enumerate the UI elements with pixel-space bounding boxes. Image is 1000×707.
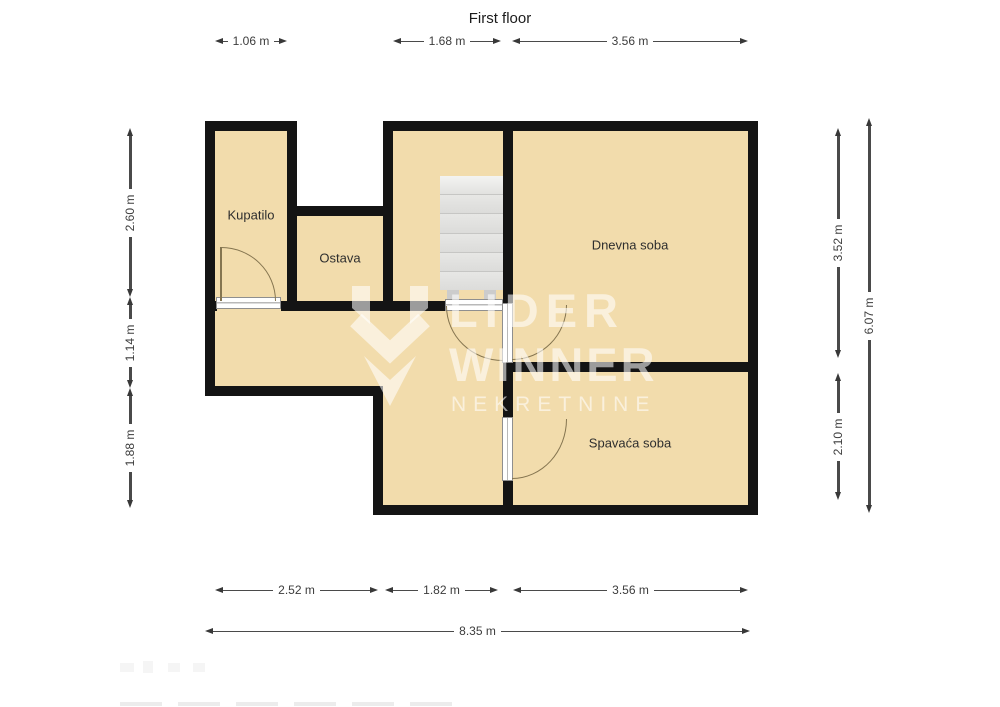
wall-mid-main [281, 301, 445, 311]
arrow-left-icon [512, 38, 520, 44]
arrow-left-icon [205, 628, 213, 634]
arrow-right-icon [740, 587, 748, 593]
arrow-up-icon [127, 297, 133, 305]
arrow-up-icon [127, 388, 133, 396]
stair-tread [440, 233, 503, 252]
stair-tread [440, 271, 503, 290]
dim-bottom-spavaca: 3.56 m [513, 583, 748, 597]
stair-tread [440, 194, 503, 213]
arrow-left-icon [215, 587, 223, 593]
floor-plan-page: First floor Kupatilo Ostava Dnevna soba … [0, 0, 1000, 707]
faint-artifact [120, 663, 134, 672]
faint-artifact [193, 663, 205, 672]
arrow-left-icon [385, 587, 393, 593]
dim-top-kupatilo: 1.06 m [215, 34, 287, 48]
wall-top-kupatilo [205, 121, 297, 131]
faint-artifact [143, 661, 153, 673]
dim-bottom-hall: 1.82 m [385, 583, 498, 597]
wall-bottom-main [373, 505, 758, 515]
dim-bottom-left: 2.52 m [215, 583, 378, 597]
dim-right-dnevna: 3.52 m [831, 128, 845, 358]
arrow-up-icon [127, 128, 133, 136]
dim-right-spavaca: 2.10 m [831, 373, 845, 500]
arrow-down-icon [835, 492, 841, 500]
wall-dnevna-spavaca-divider [503, 362, 758, 372]
dim-right-total: 6.07 m [862, 118, 876, 513]
arrow-right-icon [742, 628, 750, 634]
arrow-down-icon [127, 380, 133, 388]
page-title: First floor [0, 10, 1000, 27]
arrow-right-icon [490, 587, 498, 593]
arrow-left-icon [513, 587, 521, 593]
wall-lowerhall-left [373, 391, 383, 515]
dim-left-middle: 1.14 m [123, 297, 137, 388]
cropped-watermark-strip [120, 702, 466, 706]
arrow-down-icon [835, 350, 841, 358]
arrow-down-icon [866, 505, 872, 513]
dim-top-dnevna: 3.56 m [512, 34, 748, 48]
staircase [440, 176, 503, 290]
arrow-up-icon [835, 128, 841, 136]
room-label-ostava: Ostava [319, 251, 360, 266]
dim-top-hall: 1.68 m [393, 34, 501, 48]
dim-bottom-total: 8.35 m [205, 624, 750, 638]
arrow-up-icon [835, 373, 841, 381]
room-label-kupatilo: Kupatilo [228, 208, 275, 223]
wall-ostava-top [297, 206, 393, 216]
door-leaf-kupatilo [220, 247, 222, 301]
arrow-right-icon [370, 587, 378, 593]
stair-tread [440, 252, 503, 271]
wall-hall-dnevna [503, 121, 513, 303]
room-label-dnevna-soba: Dnevna soba [592, 238, 669, 253]
arrow-up-icon [866, 118, 872, 126]
stair-tread [440, 176, 503, 194]
wall-top-main [383, 121, 758, 131]
wall-spavaca-left-upper [503, 362, 513, 417]
arrow-right-icon [493, 38, 501, 44]
wall-left-outer [205, 121, 215, 396]
room-label-spavaca-soba: Spavaća soba [589, 436, 671, 451]
wall-hall-left [383, 121, 393, 311]
arrow-right-icon [279, 38, 287, 44]
stair-tread [440, 213, 503, 232]
arrow-left-icon [215, 38, 223, 44]
arrow-down-icon [127, 289, 133, 297]
dim-left-upper: 2.60 m [123, 128, 137, 297]
wall-right-outer [748, 121, 758, 515]
floor-area-lower [373, 396, 758, 515]
arrow-left-icon [393, 38, 401, 44]
wall-bottom-left [205, 386, 383, 396]
exterior-notch [297, 121, 383, 206]
wall-kupatilo-right [287, 121, 297, 311]
arrow-right-icon [740, 38, 748, 44]
arrow-down-icon [127, 500, 133, 508]
faint-artifact [168, 663, 180, 672]
dim-left-lower: 1.88 m [123, 388, 137, 508]
